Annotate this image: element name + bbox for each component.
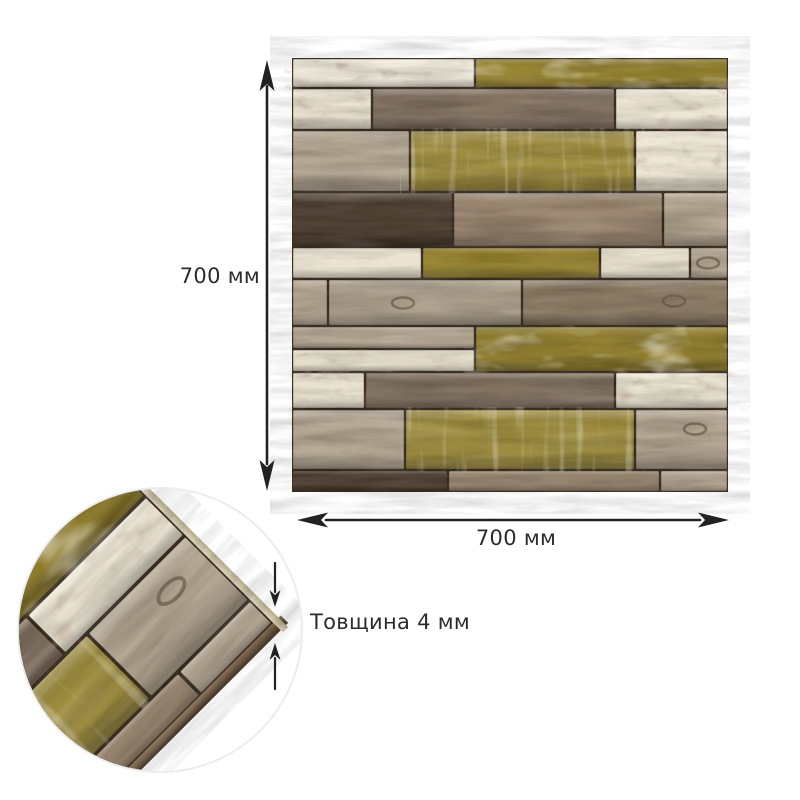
thickness-dimension-label: Товщина 4 мм	[310, 610, 470, 634]
width-dimension-label: 700 мм	[436, 526, 596, 550]
thickness-inset-circle	[0, 149, 302, 800]
figure-canvas	[0, 0, 800, 800]
wall-panel-image	[292, 58, 728, 492]
product-dimension-figure: 700 мм 700 мм Товщина 4 мм	[0, 0, 800, 800]
height-dimension-arrow	[260, 60, 275, 491]
height-dimension-label: 700 мм	[138, 264, 260, 288]
